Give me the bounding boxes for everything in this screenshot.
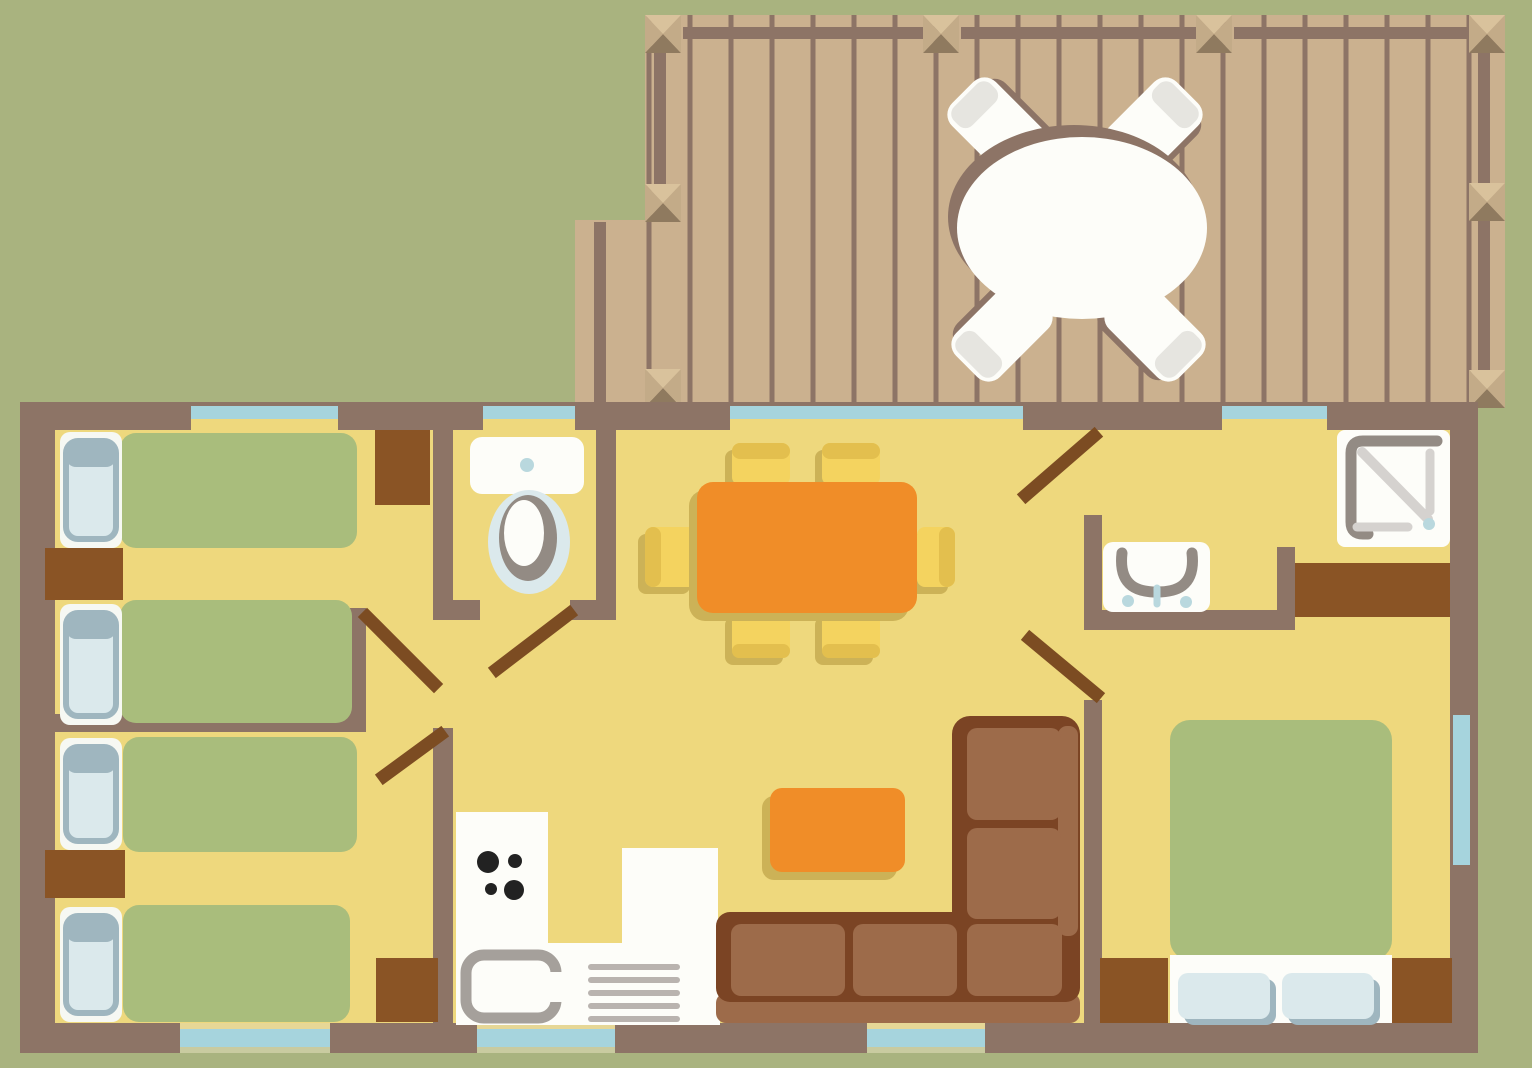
single-bed-icon xyxy=(123,905,350,1022)
window-bedroom2 xyxy=(180,1029,330,1047)
sliding-door-deck xyxy=(730,406,1023,419)
single-bed-icon xyxy=(120,600,352,723)
single-bed-icon xyxy=(120,433,357,548)
window-kitchen xyxy=(477,1029,615,1047)
wall-wc-right xyxy=(596,430,616,620)
deck-round-table-icon xyxy=(957,137,1207,319)
window-master-bedroom xyxy=(1453,715,1470,865)
shower-drain xyxy=(1423,518,1435,530)
sofa-cushion xyxy=(967,924,1062,996)
single-bed-icon xyxy=(123,737,357,852)
sofa-cushion xyxy=(731,924,845,996)
window-wc xyxy=(483,406,575,419)
wall-left xyxy=(20,402,55,1053)
sofa-cushion xyxy=(967,728,1061,820)
nightstand-icon xyxy=(45,850,125,898)
pillow xyxy=(1178,973,1270,1019)
window-bedroom1 xyxy=(191,406,338,419)
pillow xyxy=(1282,973,1374,1019)
sofa-cushion xyxy=(853,924,957,996)
wardrobe-icon xyxy=(375,430,430,505)
toilet-flush-button xyxy=(520,458,534,472)
nightstand-icon xyxy=(1392,958,1452,1023)
sofa-cushion xyxy=(967,828,1061,919)
deck-terrace xyxy=(575,15,1505,408)
floor-plan-canvas xyxy=(0,0,1532,1068)
wall-wc-right-foot xyxy=(570,600,616,620)
wardrobe-icon xyxy=(376,958,438,1022)
wall-bedroom1-stub xyxy=(350,608,366,732)
deck-slab-strip xyxy=(575,220,645,407)
wall-shower-room-return xyxy=(1277,547,1295,630)
coffee-table-icon xyxy=(770,788,905,872)
dining-table-icon xyxy=(697,482,917,613)
wall-wc-left-foot xyxy=(433,600,480,620)
double-bed-icon xyxy=(1170,720,1392,960)
wall-shower-room-bottom xyxy=(1084,610,1295,630)
wall-wc-left xyxy=(433,430,453,620)
nightstand-icon xyxy=(45,548,123,600)
window-living xyxy=(867,1029,985,1047)
floor-plan xyxy=(0,0,1532,1068)
window-shower-room xyxy=(1222,406,1327,419)
closet-icon xyxy=(1295,563,1450,617)
nightstand-icon xyxy=(1100,958,1168,1023)
wall-right-divider-lower xyxy=(1084,700,1102,1026)
